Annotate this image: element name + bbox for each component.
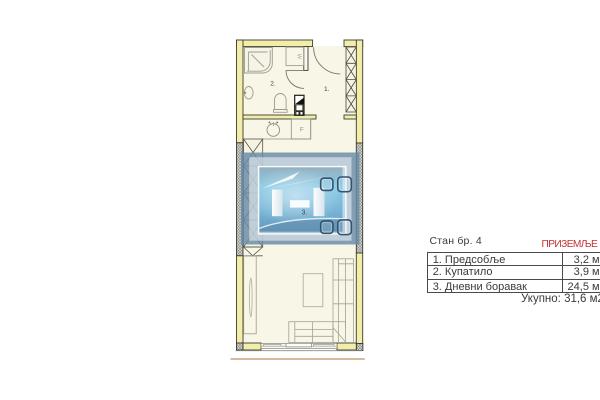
svg-text:2.: 2. — [270, 80, 276, 87]
svg-text:F: F — [300, 128, 304, 134]
svg-text:3.: 3. — [302, 210, 308, 217]
svg-text:1.: 1. — [324, 86, 330, 93]
svg-text:W: W — [296, 54, 302, 60]
